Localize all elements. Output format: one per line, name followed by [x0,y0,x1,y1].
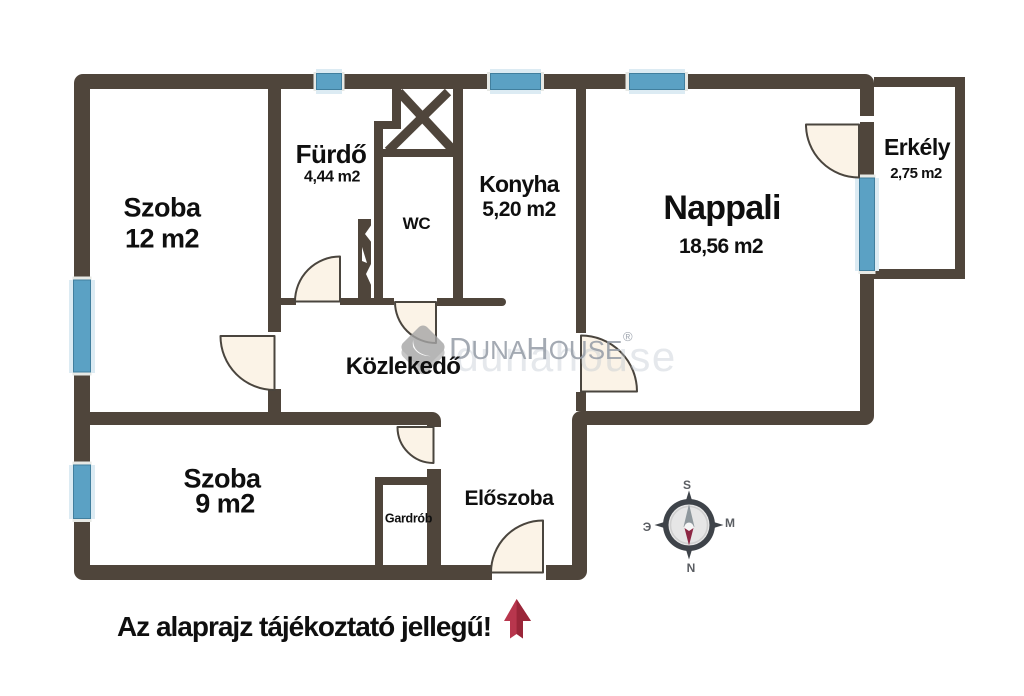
svg-text:2,75 m2: 2,75 m2 [890,165,942,182]
svg-text:12 m2: 12 m2 [125,224,199,254]
svg-text:WC: WC [403,214,431,233]
svg-text:9 m2: 9 m2 [195,489,255,519]
svg-text:Szoba: Szoba [123,193,201,223]
svg-text:Előszoba: Előszoba [465,487,555,510]
svg-text:Gardrób: Gardrób [385,512,433,526]
svg-text:18,56 m2: 18,56 m2 [679,235,763,258]
svg-text:N: N [687,561,696,575]
svg-text:Fürdő: Fürdő [296,139,367,169]
svg-text:4,44 m2: 4,44 m2 [304,169,360,186]
svg-text:®: ® [623,329,633,344]
svg-text:Konyha: Konyha [479,171,560,197]
svg-text:Közlekedő: Közlekedő [346,353,461,380]
svg-text:Э: Э [643,520,652,534]
svg-text:Nappali: Nappali [663,189,780,227]
svg-text:DUNAHOUSE: DUNAHOUSE [449,331,622,366]
svg-text:M: M [725,516,735,530]
svg-text:5,20 m2: 5,20 m2 [482,198,556,221]
svg-text:Az alaprajz tájékoztató jelleg: Az alaprajz tájékoztató jellegű! [117,611,491,642]
svg-text:S: S [683,478,691,492]
svg-text:Erkély: Erkély [884,134,951,160]
